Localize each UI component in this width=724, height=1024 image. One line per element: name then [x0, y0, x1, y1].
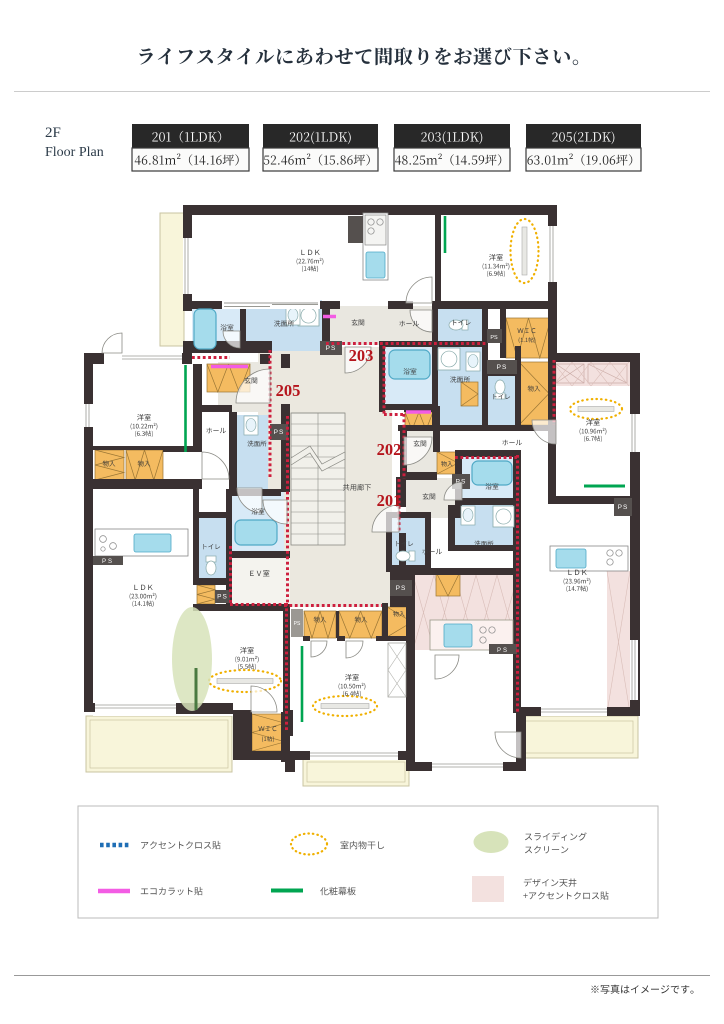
svg-text:PS: PS — [490, 335, 498, 341]
svg-text:203: 203 — [349, 346, 374, 365]
svg-text:PS: PS — [274, 429, 285, 436]
svg-text:PS: PS — [102, 559, 114, 565]
svg-text:PS: PS — [497, 364, 508, 371]
svg-text:202: 202 — [377, 440, 402, 459]
svg-text:PS: PS — [497, 648, 509, 654]
svg-text:PS: PS — [217, 594, 228, 601]
svg-text:205: 205 — [276, 381, 301, 400]
svg-text:PS: PS — [326, 345, 337, 352]
svg-text:PS: PS — [294, 621, 301, 627]
svg-text:PS: PS — [618, 504, 629, 511]
svg-text:2F: 2F — [45, 125, 61, 141]
svg-text:PS: PS — [396, 585, 407, 592]
svg-text:201: 201 — [377, 491, 402, 510]
svg-text:Floor Plan: Floor Plan — [45, 145, 104, 160]
